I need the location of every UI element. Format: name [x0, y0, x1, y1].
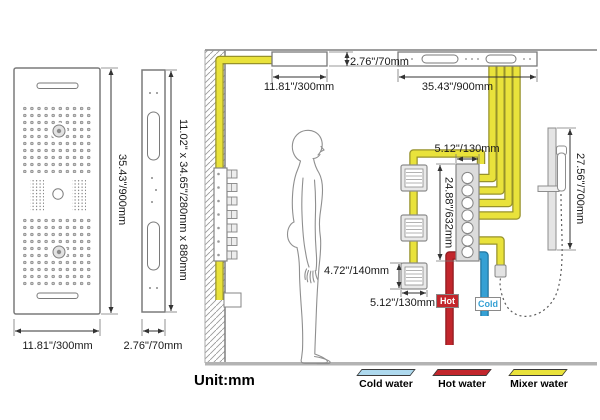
jet-height-label: 4.72"/140mm [324, 265, 388, 277]
front-panel-view [14, 68, 100, 314]
unit-label: Unit:mm [194, 372, 255, 389]
hand-shower-outlet [495, 265, 506, 277]
panel-thickness-label: 2.76"/70mm [350, 56, 409, 68]
side-slot-top [148, 112, 160, 160]
jet-width-label: 5.12"/130mm [370, 297, 434, 309]
side-panel-view [142, 70, 165, 312]
valve-width-label: 5.12"/130mm [432, 143, 502, 155]
mist-cluster-right [72, 179, 86, 211]
side-dims-label: 11.02" x 34.65"/280mm x 880mm [176, 85, 190, 315]
cold-water-swatch [356, 369, 415, 376]
hot-water-legend-label: Hot water [426, 378, 498, 390]
cold-water-tag: Cold [475, 297, 501, 311]
top-waterfall-slot [37, 83, 78, 89]
wall-outlet-box [224, 293, 241, 307]
human-figure [288, 130, 331, 363]
panel-right-width-label: 35.43"/900mm [410, 81, 505, 93]
ceiling-panel-left [272, 52, 327, 66]
mixer-water-swatch [508, 369, 567, 376]
valve-height-label: 24.88"/632mm [442, 166, 455, 259]
front-height-label: 35.43"/900mm [115, 115, 129, 265]
valve-box [456, 164, 479, 261]
ceiling-panel-right [398, 52, 537, 66]
panel-left-width-label: 11.81"/300mm [254, 81, 344, 93]
mist-cluster-left [30, 179, 44, 211]
front-width-label: 11.81"/300mm [10, 340, 105, 352]
bar-height-label: 27.56"/700mm [573, 129, 587, 249]
hot-water-swatch [432, 369, 491, 376]
mixer-water-legend-label: Mixer water [503, 378, 575, 390]
floor-line [205, 362, 597, 366]
diagram-graphics [0, 0, 600, 420]
cold-water-legend-label: Cold water [350, 378, 422, 390]
bottom-waterfall-slot [37, 293, 78, 299]
wall-valve-side-view [214, 168, 237, 261]
body-jets [401, 165, 427, 289]
hot-water-tag: Hot [436, 294, 459, 308]
valve-knobs [227, 170, 237, 259]
shower-installation-diagram: 35.43"/900mm 11.02" x 34.65"/280mm x 880… [0, 0, 600, 420]
mid-jet [53, 189, 63, 199]
side-slot-bottom [148, 222, 160, 270]
side-width-label: 2.76"/70mm [116, 340, 190, 352]
